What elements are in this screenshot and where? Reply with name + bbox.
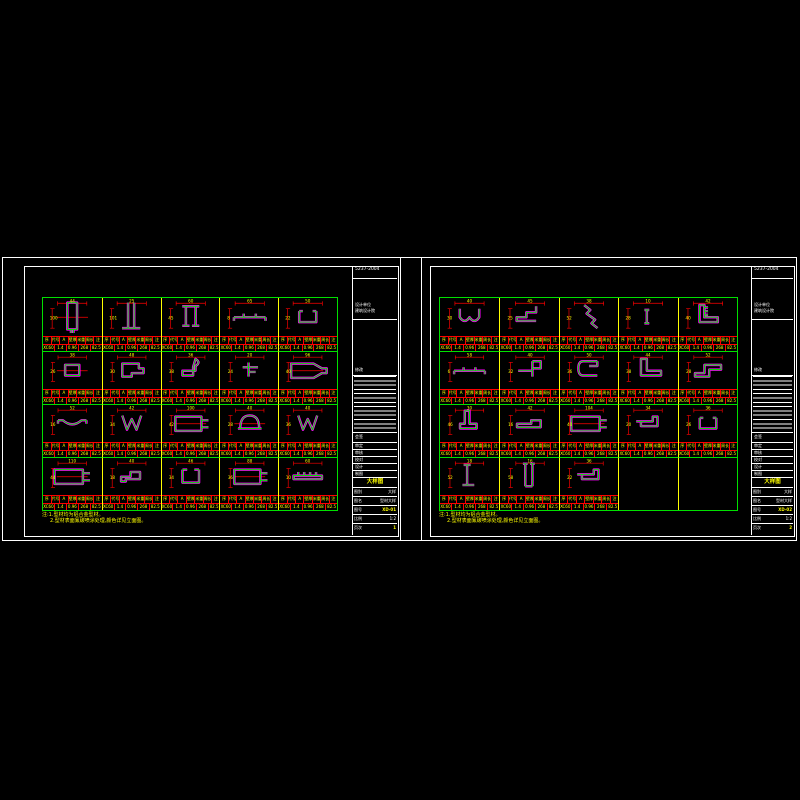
spec-table: 序代号A壁厚米重周长注 XC601.40.9626882.5 [103,495,161,510]
profile-drawing: 88 36 [220,458,278,495]
dim-label: 16 [508,422,514,427]
spec-value-cell: 268 [314,504,326,511]
dim-label: 34 [110,422,116,427]
info-label: 图名 [753,497,769,505]
profile-cell: 52 28 序代号A壁厚米重周长注 XC601.40.9626882.5 [678,351,737,404]
profile-svg: 44 38 [620,353,676,389]
profile-drawing: 38 52 [560,298,618,336]
dim-label: 16 [527,459,533,464]
spec-table: 序代号A壁厚米重周长注 XC601.40.9626882.5 [679,336,737,351]
spec-value-cell: XC60 [560,504,572,511]
profile-cell: 104 40 序代号A壁厚米重周长注 XC601.40.9626882.5 [559,404,618,457]
spec-table-value-row: XC601.40.9626882.5 [220,450,278,458]
page-number: 2 [769,524,792,532]
profile-cell: 44 100 序代号A壁厚米重周长注 XC601.40.9626882.5 [43,298,102,351]
profile-svg: 60 45 [163,299,218,335]
spec-table: 序代号A壁厚米重周长注 XC601.40.9626882.5 [43,442,102,457]
profile-cell: 60 10 序代号A壁厚米重周长注 XC601.40.9626882.5 [278,457,337,510]
spec-value-cell: 1.4 [232,504,244,511]
spec-table-value-row: XC601.40.9626882.5 [103,503,161,511]
profile-drawing: 36 26 [679,405,737,442]
profile-svg: 60 10 [280,459,335,495]
profile-svg: 30 46 [441,406,498,442]
profile-drawing: 100 42 [162,405,220,442]
revision-label: 修改 [752,366,793,376]
sign-label: 会签 [353,432,397,443]
profile-drawing: 110 44 [43,458,102,495]
dim-label: 36 [286,422,292,427]
dim-label: 45 [527,299,533,304]
dim-label: 10 [646,299,652,304]
dim-label: 24 [227,369,233,374]
spec-table: 序代号A壁厚米重周长注 XC601.40.9626882.5 [162,389,220,404]
spec-value-cell: 0.96 [185,504,197,511]
spec-value-cell: XC60 [500,504,512,511]
spec-value-cell: 268 [536,504,548,511]
profile-cell: 48 30 序代号A壁厚米重周长注 XC601.40.9626882.5 [102,351,161,404]
dim-label: 20 [626,422,632,427]
spec-table-value-row: XC601.40.9626882.5 [500,450,558,458]
profile-drawing: 42 34 [103,405,161,442]
dim-label: 30 [110,369,116,374]
profile-svg: 16 58 [502,459,558,495]
role-row: 审定 [353,443,397,450]
spec-value-cell: 1.4 [173,504,185,511]
info-row: 图名 型材大样 [752,496,793,505]
profile-svg: 42 16 [502,406,558,442]
page-row: 页次 2 [752,523,793,532]
dim-label: 36 [567,369,573,374]
dim-label: 48 [129,353,135,358]
spec-table: 序代号A壁厚米重周长注 XC601.40.9626882.5 [560,442,618,457]
profile-svg: 58 6 [441,353,498,389]
spec-table: 序代号A壁厚米重周长注 XC601.40.9626882.5 [440,442,499,457]
profile-svg: 100 42 [163,406,218,442]
profile-drawing: 60 10 [279,458,337,495]
spec-value-cell: 82.5 [91,504,102,511]
spec-table-value-row: XC601.40.9626882.5 [500,503,558,511]
dim-label: 25 [129,299,135,304]
spec-value-cell: 0.96 [464,504,476,511]
page-number: 1 [370,524,396,532]
profile-svg: 88 36 [222,459,277,495]
role-row: 审核 [752,450,793,457]
spec-table-value-row: XC601.40.9626882.5 [560,344,618,352]
profile-cell: 10 28 序代号A壁厚米重周长注 XC601.40.9626882.5 [618,298,677,351]
profile-drawing: 42 40 [679,298,737,336]
cad-canvas: 44 100 序代号A壁厚米重周长注 XC601.40.9626882.5 [0,0,800,800]
right-sheet-notes: 注:1.型材均为铝合金型材。 2.型材表面氟碳喷涂处理,颜色详见立面图。 [439,512,699,524]
profile-drawing: 40 36 [279,405,337,442]
spec-table: 序代号A壁厚米重周长注 XC601.40.9626882.5 [279,336,337,351]
empty-cell [678,457,737,510]
profile-svg: 40 36 [280,406,335,442]
role-row: 校对 [353,457,397,464]
spec-value-cell: 1.4 [572,504,584,511]
profile-drawing: 40 28 [220,405,278,442]
profile-cell: 34 20 序代号A壁厚米重周长注 XC601.40.9626882.5 [618,404,677,457]
spec-value-cell: 82.5 [209,504,220,511]
spec-table: 序代号A壁厚米重周长注 XC601.40.9626882.5 [43,336,102,351]
profile-svg: 36 22 [561,459,617,495]
revision-table-lines [753,376,792,432]
dim-label: 40 [527,353,533,358]
spec-table-value-row: XC601.40.9626882.5 [679,450,737,458]
dim-label: 8 [227,315,230,320]
spec-table-value-row: XC601.40.9626882.5 [279,450,337,458]
profile-svg: 34 20 [620,406,676,442]
empty-cell [618,457,677,510]
dim-label: 40 [567,422,573,427]
info-label: 比例 [354,515,370,523]
spec-table: 序代号A壁厚米重周长注 XC601.40.9626882.5 [103,389,161,404]
spec-table: 序代号A壁厚米重周长注 XC601.40.9626882.5 [162,336,220,351]
profile-drawing: 36 22 [560,458,618,495]
spec-value-cell: 268 [79,504,91,511]
spec-value-cell: 82.5 [326,504,337,511]
stage-label: 大样图 [353,478,397,487]
dim-label: 22 [567,475,573,480]
stage-label: 大样图 [752,478,793,487]
spec-table-value-row: XC601.40.9626882.5 [162,344,220,352]
left-sheet-detail-grid: 44 100 序代号A壁厚米重周长注 XC601.40.9626882.5 [42,297,338,511]
info-value: 型材大样 [370,497,396,505]
dim-label: 34 [646,406,652,411]
profile-cell: 40 32 序代号A壁厚米重周长注 XC601.40.9626882.5 [499,351,558,404]
drawing-number: XD-01 [370,506,396,514]
profile-drawing: 42 16 [500,405,558,442]
profile-cell: 50 22 序代号A壁厚米重周长注 XC601.40.9626882.5 [278,298,337,351]
profile-cell: 110 44 序代号A壁厚米重周长注 XC601.40.9626882.5 [43,457,102,510]
page-row: 页次 1 [353,523,397,532]
info-label: 图别 [354,488,370,496]
dim-label: 36 [705,406,711,411]
profile-svg: 50 22 [280,299,335,335]
spec-value-cell: XC60 [220,504,232,511]
scale-row: 比例 1:2 [353,514,397,523]
firm-line: 建筑设计院 [754,308,791,314]
dim-label: 6 [448,369,451,374]
dim-label: 60 [306,459,312,464]
spec-table-value-row: XC601.40.9626882.5 [103,397,161,405]
scale-value: 1:2 [370,515,396,523]
dim-label: 101 [109,315,117,320]
spec-value-cell: XC60 [43,504,55,511]
profile-cell: 96 40 序代号A壁厚米重周长注 XC601.40.9626882.5 [278,351,337,404]
spec-table: 序代号A壁厚米重周长注 XC601.40.9626882.5 [619,336,677,351]
profile-drawing: 20 24 [220,352,278,389]
profile-drawing: 60 45 [162,298,220,336]
dim-label: 30 [467,406,473,411]
dim-label: 42 [169,422,175,427]
dim-label: 50 [305,299,311,304]
dim-label: 20 [247,353,253,358]
spec-value-cell: 268 [256,504,268,511]
dim-label: 34 [169,475,175,480]
profile-drawing: 58 6 [440,352,499,389]
spec-table-value-row: XC601.40.9626882.5 [220,344,278,352]
spec-table-value-row: XC601.40.9626882.5 [560,450,618,458]
profile-svg: 38 52 [561,299,617,335]
spec-value-cell: 268 [595,504,607,511]
profile-drawing: 40 18 [103,458,161,495]
spec-table-value-row: XC601.40.9626882.5 [560,503,618,511]
profile-svg: 40 28 [222,406,277,442]
profile-svg: 42 40 [680,299,736,335]
spec-table-value-row: XC601.40.9626882.5 [43,344,102,352]
firm-line: 建筑设计院 [355,308,395,314]
dim-label: 38 [626,369,632,374]
dim-label: 44 [70,299,76,304]
profile-drawing: 52 28 [679,352,737,389]
profile-svg: 36 38 [163,353,218,389]
profile-cell: 42 16 序代号A壁厚米重周长注 XC601.40.9626882.5 [499,404,558,457]
dim-label: 42 [527,406,533,411]
spec-value-cell: 0.96 [126,504,138,511]
profile-cell: 52 16 序代号A壁厚米重周长注 XC601.40.9626882.5 [43,404,102,457]
spec-table-value-row: XC601.40.9626882.5 [103,344,161,352]
dim-label: 22 [286,315,292,320]
spec-table-value-row: XC601.40.9626882.5 [440,450,499,458]
profile-cell: 40 36 序代号A壁厚米重周长注 XC601.40.9626882.5 [278,404,337,457]
revision-label: 修改 [353,366,397,376]
spec-table-value-row: XC601.40.9626882.5 [679,397,737,405]
spec-table: 序代号A壁厚米重周长注 XC601.40.9626882.5 [440,495,499,510]
profile-cell: 40 18 序代号A壁厚米重周长注 XC601.40.9626882.5 [102,457,161,510]
profile-drawing: 10 28 [619,298,677,336]
info-value: 大样 [769,488,792,496]
dim-label: 45 [168,315,174,320]
design-firm: 设计单位 建筑设计院 [752,301,793,320]
profile-drawing: 65 8 [220,298,278,336]
dim-label: 58 [467,353,473,358]
dim-label: 110 [69,459,77,464]
dim-label: 26 [50,369,56,374]
info-label: 图号 [753,506,769,514]
profile-svg: 25 101 [104,299,159,335]
standard-text: 5237-2004 [353,266,397,279]
profile-drawing: 52 16 [43,405,102,442]
profile-drawing: 50 22 [279,298,337,336]
spec-table-value-row: XC601.40.9626882.5 [162,503,220,511]
profile-svg: 104 40 [561,406,617,442]
spec-table: 序代号A壁厚米重周长注 XC601.40.9626882.5 [220,336,278,351]
dim-label: 44 [646,353,652,358]
dim-label: 40 [129,459,135,464]
dim-label: 18 [110,475,116,480]
role-row: 校对 [752,457,793,464]
spec-value-cell: 1.4 [115,504,127,511]
spec-table-value-row: XC601.40.9626882.5 [162,450,220,458]
dim-label: 52 [448,475,454,480]
profile-cell: 44 38 序代号A壁厚米重周长注 XC601.40.9626882.5 [618,351,677,404]
dim-label: 40 [685,315,691,320]
profile-svg: 48 30 [104,353,159,389]
dim-label: 88 [247,459,253,464]
profile-drawing: 18 52 [440,458,499,495]
spec-table-value-row: XC601.40.9626882.5 [43,503,102,511]
profile-cell: 60 45 序代号A壁厚米重周长注 XC601.40.9626882.5 [161,298,220,351]
profile-cell: 42 34 序代号A壁厚米重周长注 XC601.40.9626882.5 [102,404,161,457]
profile-svg: 36 26 [680,406,736,442]
profile-drawing: 25 101 [103,298,161,336]
dim-label: 10 [286,475,292,480]
spec-table: 序代号A壁厚米重周长注 XC601.40.9626882.5 [619,389,677,404]
dim-label: 100 [50,315,58,320]
spec-table-value-row: XC601.40.9626882.5 [220,503,278,511]
drawing-number: XD-02 [769,506,792,514]
profile-svg: 44 100 [44,299,100,335]
dim-label: 46 [448,422,454,427]
profile-drawing: 34 20 [619,405,677,442]
spec-table-value-row: XC601.40.9626882.5 [103,450,161,458]
drawing-number-row: 图号 XD-01 [353,505,397,514]
dim-label: 16 [50,422,56,427]
spec-value-cell: 0.96 [67,504,79,511]
dim-label: 28 [686,369,692,374]
profile-drawing: 44 100 [43,298,102,336]
profile-svg: 38 26 [44,353,100,389]
spec-table: 序代号A壁厚米重周长注 XC601.40.9626882.5 [162,442,220,457]
spec-table-value-row: XC601.40.9626882.5 [619,397,677,405]
profile-cell: 88 36 序代号A壁厚米重周长注 XC601.40.9626882.5 [219,457,278,510]
profile-drawing: 40 30 [440,298,499,336]
info-label: 图号 [354,506,370,514]
spec-value-cell: 82.5 [548,504,559,511]
note-line: 2.型材表面氟碳喷涂处理,颜色详见立面图。 [42,518,302,524]
spec-table-value-row: XC601.40.9626882.5 [500,344,558,352]
spec-value-cell: 82.5 [488,504,499,511]
dim-label: 46 [188,459,194,464]
dim-label: 44 [50,475,56,480]
dim-label: 65 [247,299,253,304]
dim-label: 36 [188,353,194,358]
profile-svg: 45 25 [502,299,558,335]
profile-cell: 16 58 序代号A壁厚米重周长注 XC601.40.9626882.5 [499,457,558,510]
dim-label: 26 [686,422,692,427]
dim-label: 40 [247,406,253,411]
right-sheet-detail-grid: 40 30 序代号A壁厚米重周长注 XC601.40.9626882.5 [439,297,738,511]
profile-drawing: 45 25 [500,298,558,336]
spec-table-value-row: XC601.40.9626882.5 [162,397,220,405]
spec-table: 序代号A壁厚米重周长注 XC601.40.9626882.5 [220,495,278,510]
profile-drawing: 40 32 [500,352,558,389]
spec-table-value-row: XC601.40.9626882.5 [279,397,337,405]
spec-table: 序代号A壁厚米重周长注 XC601.40.9626882.5 [440,389,499,404]
spec-table: 序代号A壁厚米重周长注 XC601.40.9626882.5 [560,336,618,351]
dim-label: 28 [227,422,233,427]
role-row: 设计 [752,464,793,471]
spec-table-value-row: XC601.40.9626882.5 [279,344,337,352]
dim-label: 40 [306,406,312,411]
dim-label: 58 [508,475,514,480]
left-sheet-notes: 注:1.型材均为铝合金型材。 2.型材表面氟碳喷涂处理,颜色详见立面图。 [42,512,302,524]
spec-table: 序代号A壁厚米重周长注 XC601.40.9626882.5 [43,495,102,510]
profile-cell: 25 101 序代号A壁厚米重周长注 XC601.40.9626882.5 [102,298,161,351]
profile-svg: 40 30 [441,299,498,335]
spec-value-cell: 0.96 [303,504,315,511]
profile-cell: 38 52 序代号A壁厚米重周长注 XC601.40.9626882.5 [559,298,618,351]
spec-table: 序代号A壁厚米重周长注 XC601.40.9626882.5 [220,442,278,457]
profile-drawing: 16 58 [500,458,558,495]
spec-value-cell: 268 [476,504,488,511]
info-row: 图别 大样 [752,487,793,496]
profile-drawing: 50 36 [560,352,618,389]
spec-value-cell: 1.4 [452,504,464,511]
profile-svg: 42 34 [104,406,159,442]
profile-svg: 10 28 [620,299,676,335]
spec-table-value-row: XC601.40.9626882.5 [679,344,737,352]
profile-cell: 100 42 序代号A壁厚米重周长注 XC601.40.9626882.5 [161,404,220,457]
profile-svg: 50 36 [561,353,617,389]
profile-cell: 36 38 序代号A壁厚米重周长注 XC601.40.9626882.5 [161,351,220,404]
scale-row: 比例 1:2 [752,514,793,523]
spec-table-value-row: XC601.40.9626882.5 [440,503,499,511]
right-title-block: 5237-2004 设计单位 建筑设计院 修改 会签 审定 审核 校对 设计 制… [751,266,793,535]
revision-table-lines [354,376,396,432]
spec-table: 序代号A壁厚米重周长注 XC601.40.9626882.5 [679,442,737,457]
spec-table: 序代号A壁厚米重周长注 XC601.40.9626882.5 [43,389,102,404]
profile-drawing: 30 46 [440,405,499,442]
profile-svg: 40 18 [104,459,159,495]
spec-table-value-row: XC601.40.9626882.5 [500,397,558,405]
dim-label: 30 [447,315,453,320]
info-label: 图别 [753,488,769,496]
spec-table: 序代号A壁厚米重周长注 XC601.40.9626882.5 [103,336,161,351]
scale-value: 1:2 [769,515,792,523]
profile-drawing: 36 38 [162,352,220,389]
dim-label: 60 [188,299,194,304]
dim-label: 104 [585,406,593,411]
profile-cell: 36 22 序代号A壁厚米重周长注 XC601.40.9626882.5 [559,457,618,510]
spec-table: 序代号A壁厚米重周长注 XC601.40.9626882.5 [279,442,337,457]
dim-label: 36 [227,475,233,480]
spec-table: 序代号A壁厚米重周长注 XC601.40.9626882.5 [162,495,220,510]
sheet-divider-left-edge [400,257,401,541]
spec-value-cell: 1.4 [55,504,67,511]
spec-table-value-row: XC601.40.9626882.5 [220,397,278,405]
profile-drawing: 104 40 [560,405,618,442]
spec-table: 序代号A壁厚米重周长注 XC601.40.9626882.5 [500,336,558,351]
spec-value-cell: XC60 [162,504,174,511]
info-row: 图别 大样 [353,487,397,496]
dim-label: 36 [586,459,592,464]
role-row: 制图 [353,471,397,478]
spec-table-value-row: XC601.40.9626882.5 [440,397,499,405]
profile-drawing: 38 26 [43,352,102,389]
info-value: 型材大样 [769,497,792,505]
info-value: 大样 [370,488,396,496]
profile-svg: 52 16 [44,406,100,442]
spec-table-value-row: XC601.40.9626882.5 [619,344,677,352]
dim-label: 28 [626,315,632,320]
profile-drawing: 46 34 [162,458,220,495]
profile-drawing: 96 40 [279,352,337,389]
dim-label: 42 [705,299,711,304]
profile-svg: 52 28 [680,353,736,389]
dim-label: 100 [187,406,195,411]
profile-svg: 20 24 [222,353,277,389]
profile-drawing: 48 30 [103,352,161,389]
dim-label: 38 [70,353,76,358]
profile-svg: 40 32 [502,353,558,389]
dim-label: 52 [705,353,711,358]
profile-cell: 40 28 序代号A壁厚米重周长注 XC601.40.9626882.5 [219,404,278,457]
spec-table-value-row: XC601.40.9626882.5 [560,397,618,405]
spec-table: 序代号A壁厚米重周长注 XC601.40.9626882.5 [500,389,558,404]
spec-table: 序代号A壁厚米重周长注 XC601.40.9626882.5 [279,495,337,510]
dim-label: 25 [507,315,513,320]
